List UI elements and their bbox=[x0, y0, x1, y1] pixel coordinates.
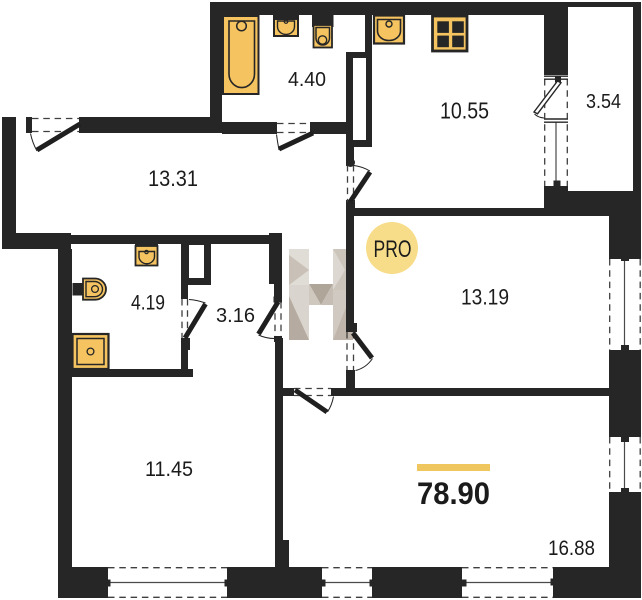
svg-text:4.19: 4.19 bbox=[131, 292, 165, 315]
svg-text:13.19: 13.19 bbox=[461, 285, 509, 310]
svg-text:13.31: 13.31 bbox=[148, 166, 198, 191]
svg-text:10.55: 10.55 bbox=[440, 98, 489, 124]
svg-text:16.88: 16.88 bbox=[548, 537, 595, 560]
svg-text:PRO: PRO bbox=[374, 236, 412, 263]
svg-text:3.16: 3.16 bbox=[216, 304, 255, 327]
svg-text:4.40: 4.40 bbox=[288, 68, 326, 91]
svg-text:3.54: 3.54 bbox=[586, 90, 621, 113]
svg-text:11.45: 11.45 bbox=[145, 458, 193, 481]
svg-text:78.90: 78.90 bbox=[417, 475, 490, 511]
